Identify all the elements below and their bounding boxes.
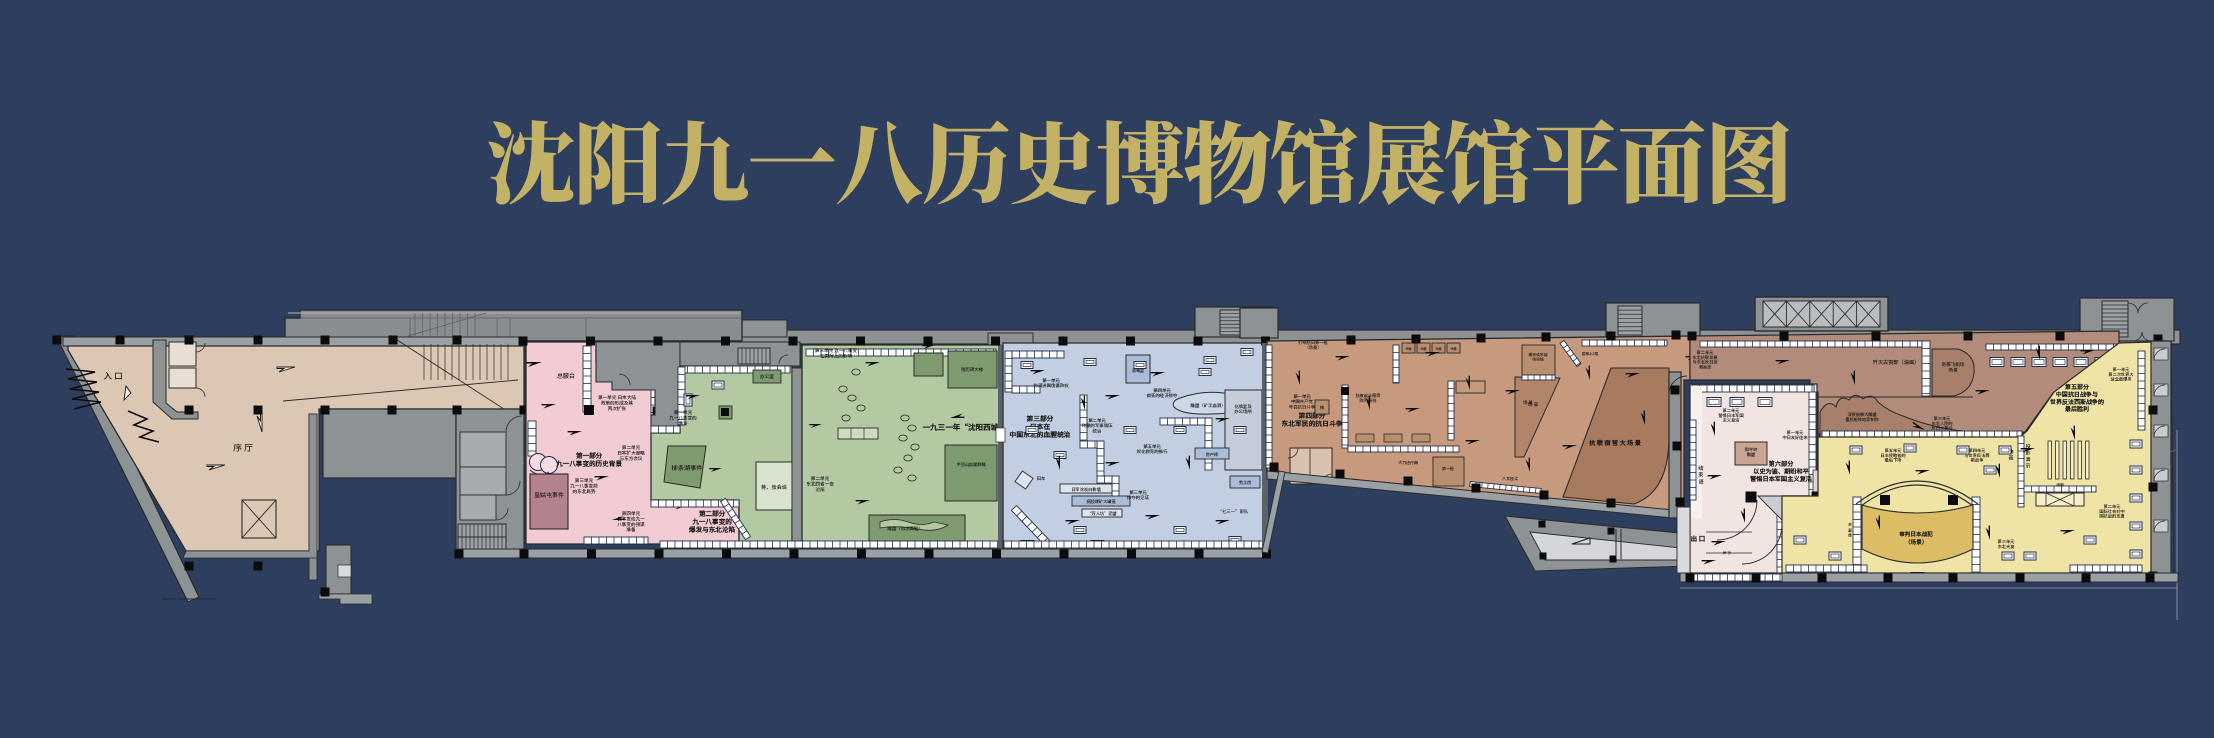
svg-text:天: 天 (1847, 523, 1852, 528)
svg-text:雕塑（矿工血泪）: 雕塑（矿工血泪） (1189, 402, 1225, 409)
svg-text:皇姑屯事件: 皇姑屯事件 (534, 490, 565, 499)
svg-text:语: 语 (1698, 478, 1703, 485)
svg-text:场景: 场景 (1434, 346, 1441, 351)
svg-text:梯: 梯 (1319, 405, 1324, 411)
svg-text:歼灭古贺部（油画）: 歼灭古贺部（油画） (1872, 359, 1920, 366)
svg-text:沦陷: 沦陷 (815, 486, 825, 493)
svg-text:两次扩张: 两次扩张 (608, 406, 627, 412)
svg-text:场景: 场景 (1449, 346, 1456, 351)
svg-text:主义复活: 主义复活 (1723, 418, 1741, 424)
svg-text:爆发: 爆发 (678, 421, 688, 427)
svg-text:号召抗日斗争: 号召抗日斗争 (1289, 403, 1316, 410)
svg-text:东北军民的抗日斗争: 东北军民的抗日斗争 (1280, 418, 1342, 428)
svg-text:日军涂炭白骨墙: 日军涂炭白骨墙 (1071, 487, 1101, 493)
svg-text:“万人坑”泥塑: “万人坑”泥塑 (1087, 510, 1117, 517)
svg-text:序 厅: 序 厅 (233, 441, 253, 454)
svg-text:房产库: 房产库 (1205, 452, 1219, 458)
svg-text:蒋、张会谈: 蒋、张会谈 (761, 484, 788, 491)
svg-text:奴化教育的推行: 奴化教育的推行 (1136, 448, 1168, 455)
svg-text:总服台: 总服台 (557, 371, 575, 380)
svg-text:的东北局势: 的东北局势 (573, 489, 596, 495)
svg-text:第一枪: 第一枪 (1442, 466, 1454, 472)
svg-text:像: 像 (1847, 533, 1852, 539)
svg-text:“七三一”部队: “七三一”部队 (1218, 508, 1249, 515)
svg-text:柳条湖事件: 柳条湖事件 (672, 463, 704, 472)
svg-text:大刀进行曲: 大刀进行曲 (1398, 460, 1418, 466)
svg-text:抗 联 宿 营 大 场 景: 抗 联 宿 营 大 场 景 (1588, 438, 1641, 447)
svg-text:示: 示 (2025, 463, 2030, 470)
svg-text:场景: 场景 (1419, 346, 1426, 351)
svg-text:东北光复: 东北光复 (1998, 543, 2016, 550)
svg-text:沈阳九一八历史博物馆展馆平面图: 沈阳九一八历史博物馆展馆平面图 (487, 95, 1792, 222)
svg-text:八女投江: 八女投江 (1502, 476, 1518, 482)
svg-text:出 口: 出 口 (1691, 533, 1706, 543)
svg-text:办公场所: 办公场所 (1233, 409, 1252, 415)
svg-text:入 口: 入 口 (104, 370, 123, 382)
svg-text:爆发与东北沦陷: 爆发与东北沦陷 (688, 524, 736, 534)
svg-text:重机枪阵地等制作: 重机枪阵地等制作 (1845, 416, 1879, 423)
svg-text:疯狂的经济掠夺: 疯狂的经济掠夺 (1147, 392, 1178, 399)
svg-text:楼梯上2楼: 楼梯上2楼 (1581, 351, 1599, 357)
svg-text:场景: 场景 (1404, 346, 1411, 351)
svg-text:油画: 油画 (2055, 482, 2064, 488)
svg-text:雕塑（勿忘国耻）: 雕塑（勿忘国耻） (886, 525, 922, 532)
svg-text:皇: 皇 (1848, 527, 1852, 533)
svg-text:准备: 准备 (625, 527, 636, 533)
svg-text:囚车: 囚车 (1037, 476, 1045, 482)
svg-text:画: 画 (2008, 455, 2013, 462)
svg-text:场景: 场景 (1947, 367, 1958, 373)
svg-text:场 景: 场 景 (1522, 400, 1533, 406)
svg-text:最后胜利: 最后胜利 (2065, 404, 2089, 413)
svg-text:统治: 统治 (1092, 427, 1102, 434)
svg-text:平顶山血案群雕: 平顶山血案群雕 (956, 462, 986, 468)
svg-text:掠夺的见证: 掠夺的见证 (1126, 494, 1149, 501)
svg-text:战全面爆发: 战全面爆发 (2111, 376, 2133, 383)
svg-text:办公室: 办公室 (759, 373, 774, 380)
svg-text:（场景）: （场景） (1305, 345, 1322, 351)
svg-text:在国际上的影响: 在国际上的影响 (819, 352, 853, 359)
svg-text:中日友好往来: 中日友好往来 (1782, 434, 1808, 441)
svg-text:抚顺煤矿大罐笼: 抚顺煤矿大罐笼 (1085, 499, 1116, 505)
svg-text:国抗战的支援: 国抗战的支援 (2099, 513, 2125, 520)
svg-text:潮高涨: 潮高涨 (1699, 364, 1712, 370)
svg-text:（场景）: （场景） (1905, 538, 1927, 546)
svg-text:雕塑: 雕塑 (1746, 452, 1756, 458)
svg-text:审判日本战犯: 审判日本战犯 (1899, 530, 1933, 538)
svg-text:九一八事变的历史背景: 九一八事变的历史背景 (555, 458, 622, 468)
svg-text:劳工房: 劳工房 (1239, 480, 1252, 486)
svg-text:中国东北的血腥统治: 中国东北的血腥统治 (1009, 429, 1070, 439)
svg-text:残历碑大楼: 残历碑大楼 (961, 366, 984, 373)
svg-text:警惕日本军国主义复活: 警惕日本军国主义复活 (1749, 474, 1813, 483)
svg-text:与东方会议: 与东方会议 (620, 455, 643, 462)
svg-text:最后下场: 最后下场 (1884, 458, 1902, 464)
svg-text:绩设施: 绩设施 (1532, 356, 1544, 362)
svg-text:斯战争: 斯战争 (1970, 457, 1984, 464)
svg-text:伪满洲国傀儡政权: 伪满洲国傀儡政权 (1032, 382, 1069, 389)
